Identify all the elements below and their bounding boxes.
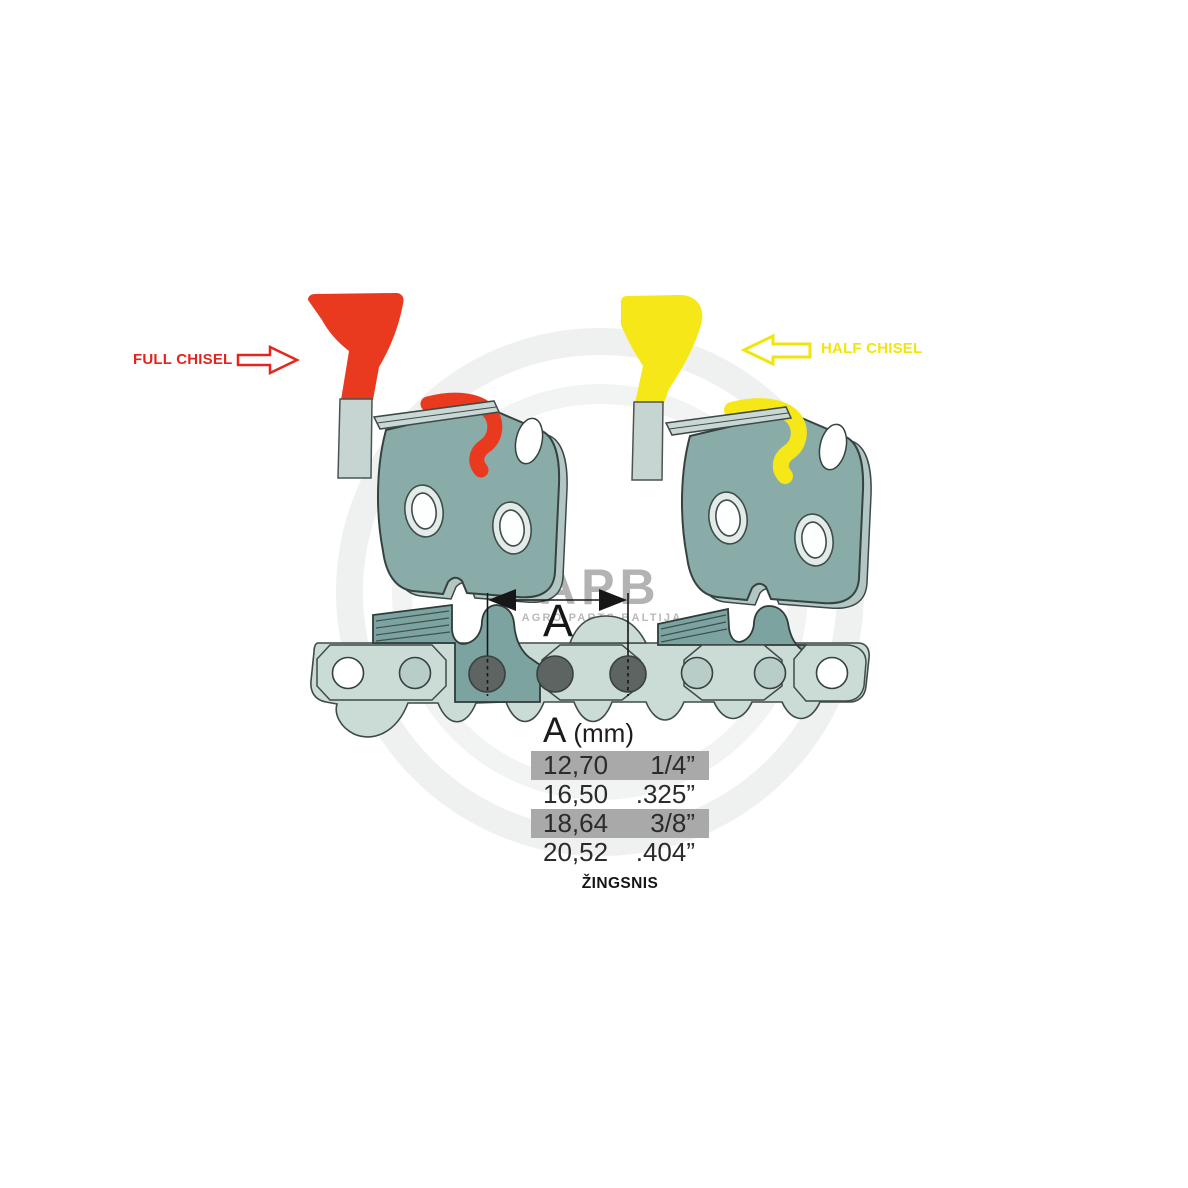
half-chisel-profile [621,295,703,403]
pitch-table-header: A (mm) [531,711,709,751]
strap-hole [817,658,848,689]
pitch-table-header-letter: A [543,711,566,751]
table-row: 16,50 .325” [531,780,709,809]
table-row: 20,52 .404” [531,838,709,867]
rivet [537,656,573,692]
strap-hole [333,658,364,689]
strap-hole [755,658,786,689]
pitch-inch-value: 1/4” [623,750,709,781]
full-chisel-profile [308,293,404,400]
drive-link-hump [570,616,646,643]
pitch-mm-value: 18,64 [531,808,623,839]
dimension-letter: A [543,595,573,646]
table-row: 12,70 1/4” [531,751,709,780]
strap-hole [400,658,431,689]
pitch-mm-value: 12,70 [531,750,623,781]
pitch-inch-value: 3/8” [623,808,709,839]
pitch-inch-value: .325” [623,779,709,810]
strap-hole [682,658,713,689]
pitch-inch-value: .404” [623,837,709,868]
full-chisel-group [308,293,567,602]
dimension-arrowhead-right [599,589,627,611]
full-chisel-profile-body [338,399,372,478]
pitch-table: A (mm) 12,70 1/4” 16,50 .325” 18,64 3/8”… [531,711,709,893]
half-chisel-profile-body [632,402,663,480]
table-row: 18,64 3/8” [531,809,709,838]
pitch-caption: ŽINGSNIS [531,875,709,893]
pitch-table-header-unit: (mm) [573,718,634,749]
full-chisel-label: FULL CHISEL [133,351,232,368]
full-chisel-arrow-icon [238,347,297,373]
half-chisel-label: HALF CHISEL [821,340,922,357]
pitch-mm-value: 20,52 [531,837,623,868]
product-diagram: APB AGRO PARTS BALTIJA [0,0,1188,1188]
chainsaw-chain-illustration: A [0,0,1188,1188]
half-chisel-arrow-icon [744,336,810,364]
pitch-mm-value: 16,50 [531,779,623,810]
